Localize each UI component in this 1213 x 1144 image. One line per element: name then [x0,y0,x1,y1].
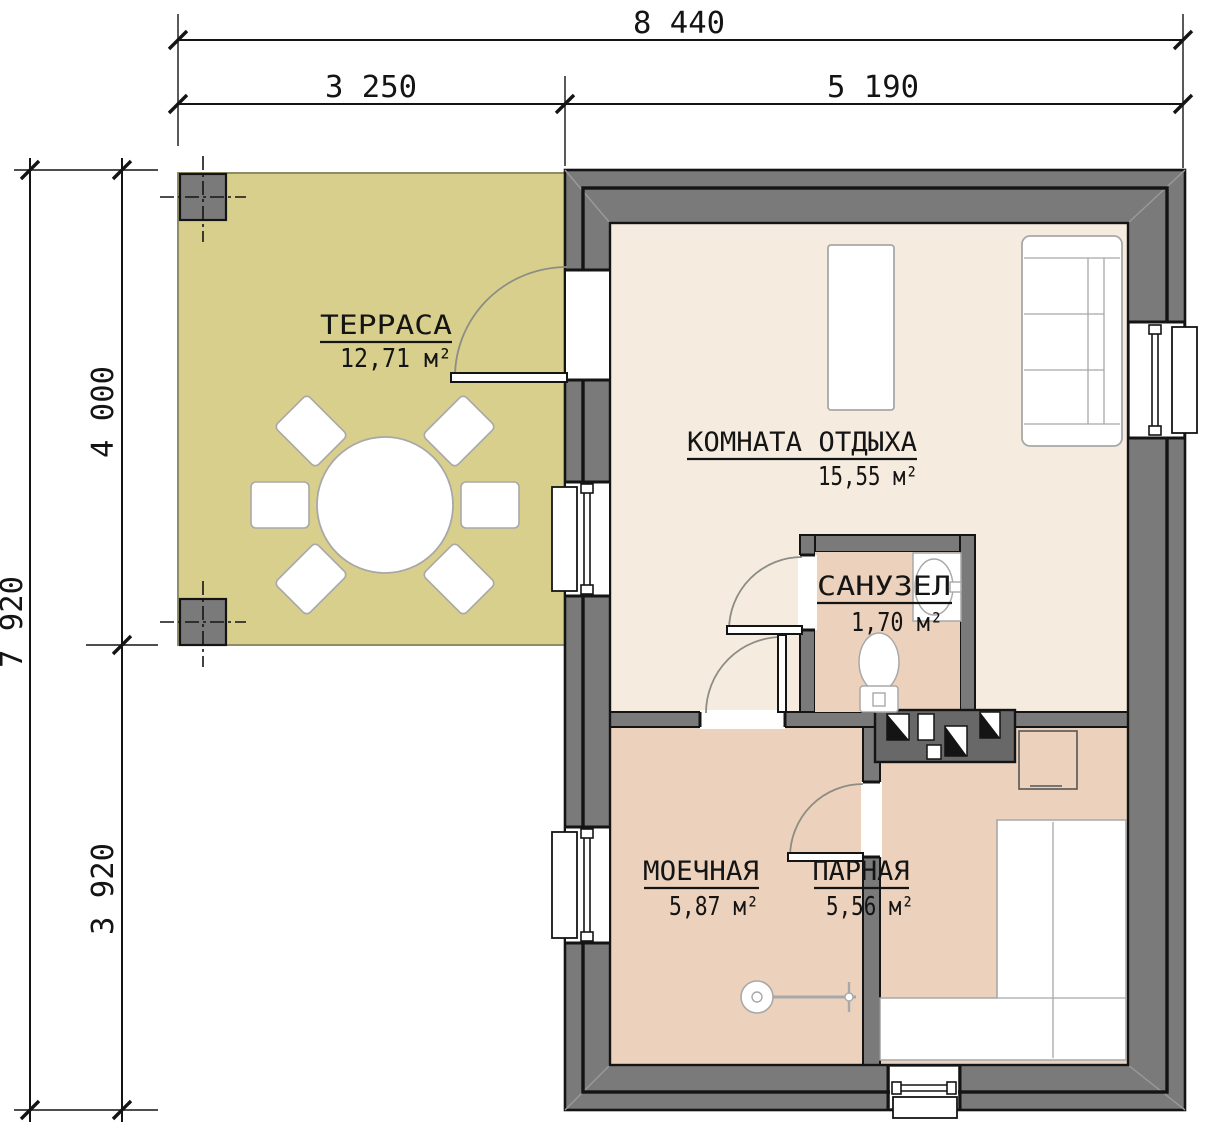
sofa [1022,236,1122,446]
steamroom-label: ПАРНАЯ [813,856,910,887]
steamroom-area: 5,56 м² [826,892,914,922]
dim-text-seg1-width: 3 250 [325,70,417,105]
chair [461,482,519,528]
dim-text-seg1-height: 4 000 [86,366,121,458]
dim-text-total-width: 8 440 [633,6,725,41]
dim-text-seg2-height: 3 920 [86,843,121,935]
bathroom-area: 1,70 м² [851,608,943,638]
lounge-table [828,245,894,410]
round-table [317,437,453,573]
floor-plan: 8 440 3 250 5 190 7 920 4 000 3 920 [0,0,1213,1144]
toilet [859,633,899,712]
terrace-room [160,156,567,667]
dim-text-total-height: 7 920 [0,576,30,668]
dimension-ticks-left [21,161,131,1119]
dim-text-seg2-width: 5 190 [827,70,919,105]
terrace-floor [178,173,567,645]
terrace-label: ТЕРРАСА [320,310,452,341]
window [552,482,610,596]
lounge-area: 15,55 м² [818,462,918,492]
window [888,1065,960,1118]
window [552,827,610,943]
window [1128,322,1197,438]
sauna-stove [875,710,1015,762]
washroom-area: 5,87 м² [669,892,759,922]
door-leaf [778,635,786,712]
chair [251,482,309,528]
terrace-area: 12,71 м² [340,344,452,374]
door-leaf [727,626,802,634]
bathroom-label: САНУЗЕЛ [817,571,951,602]
floor-plan-drawing: 8 440 3 250 5 190 7 920 4 000 3 920 [0,0,1213,1144]
washroom-label: МОЕЧНАЯ [643,856,759,887]
door-leaf [451,373,567,382]
lounge-label: КОМНАТА ОТДЫХА [687,427,917,458]
dimension-ticks-top [169,31,1192,113]
